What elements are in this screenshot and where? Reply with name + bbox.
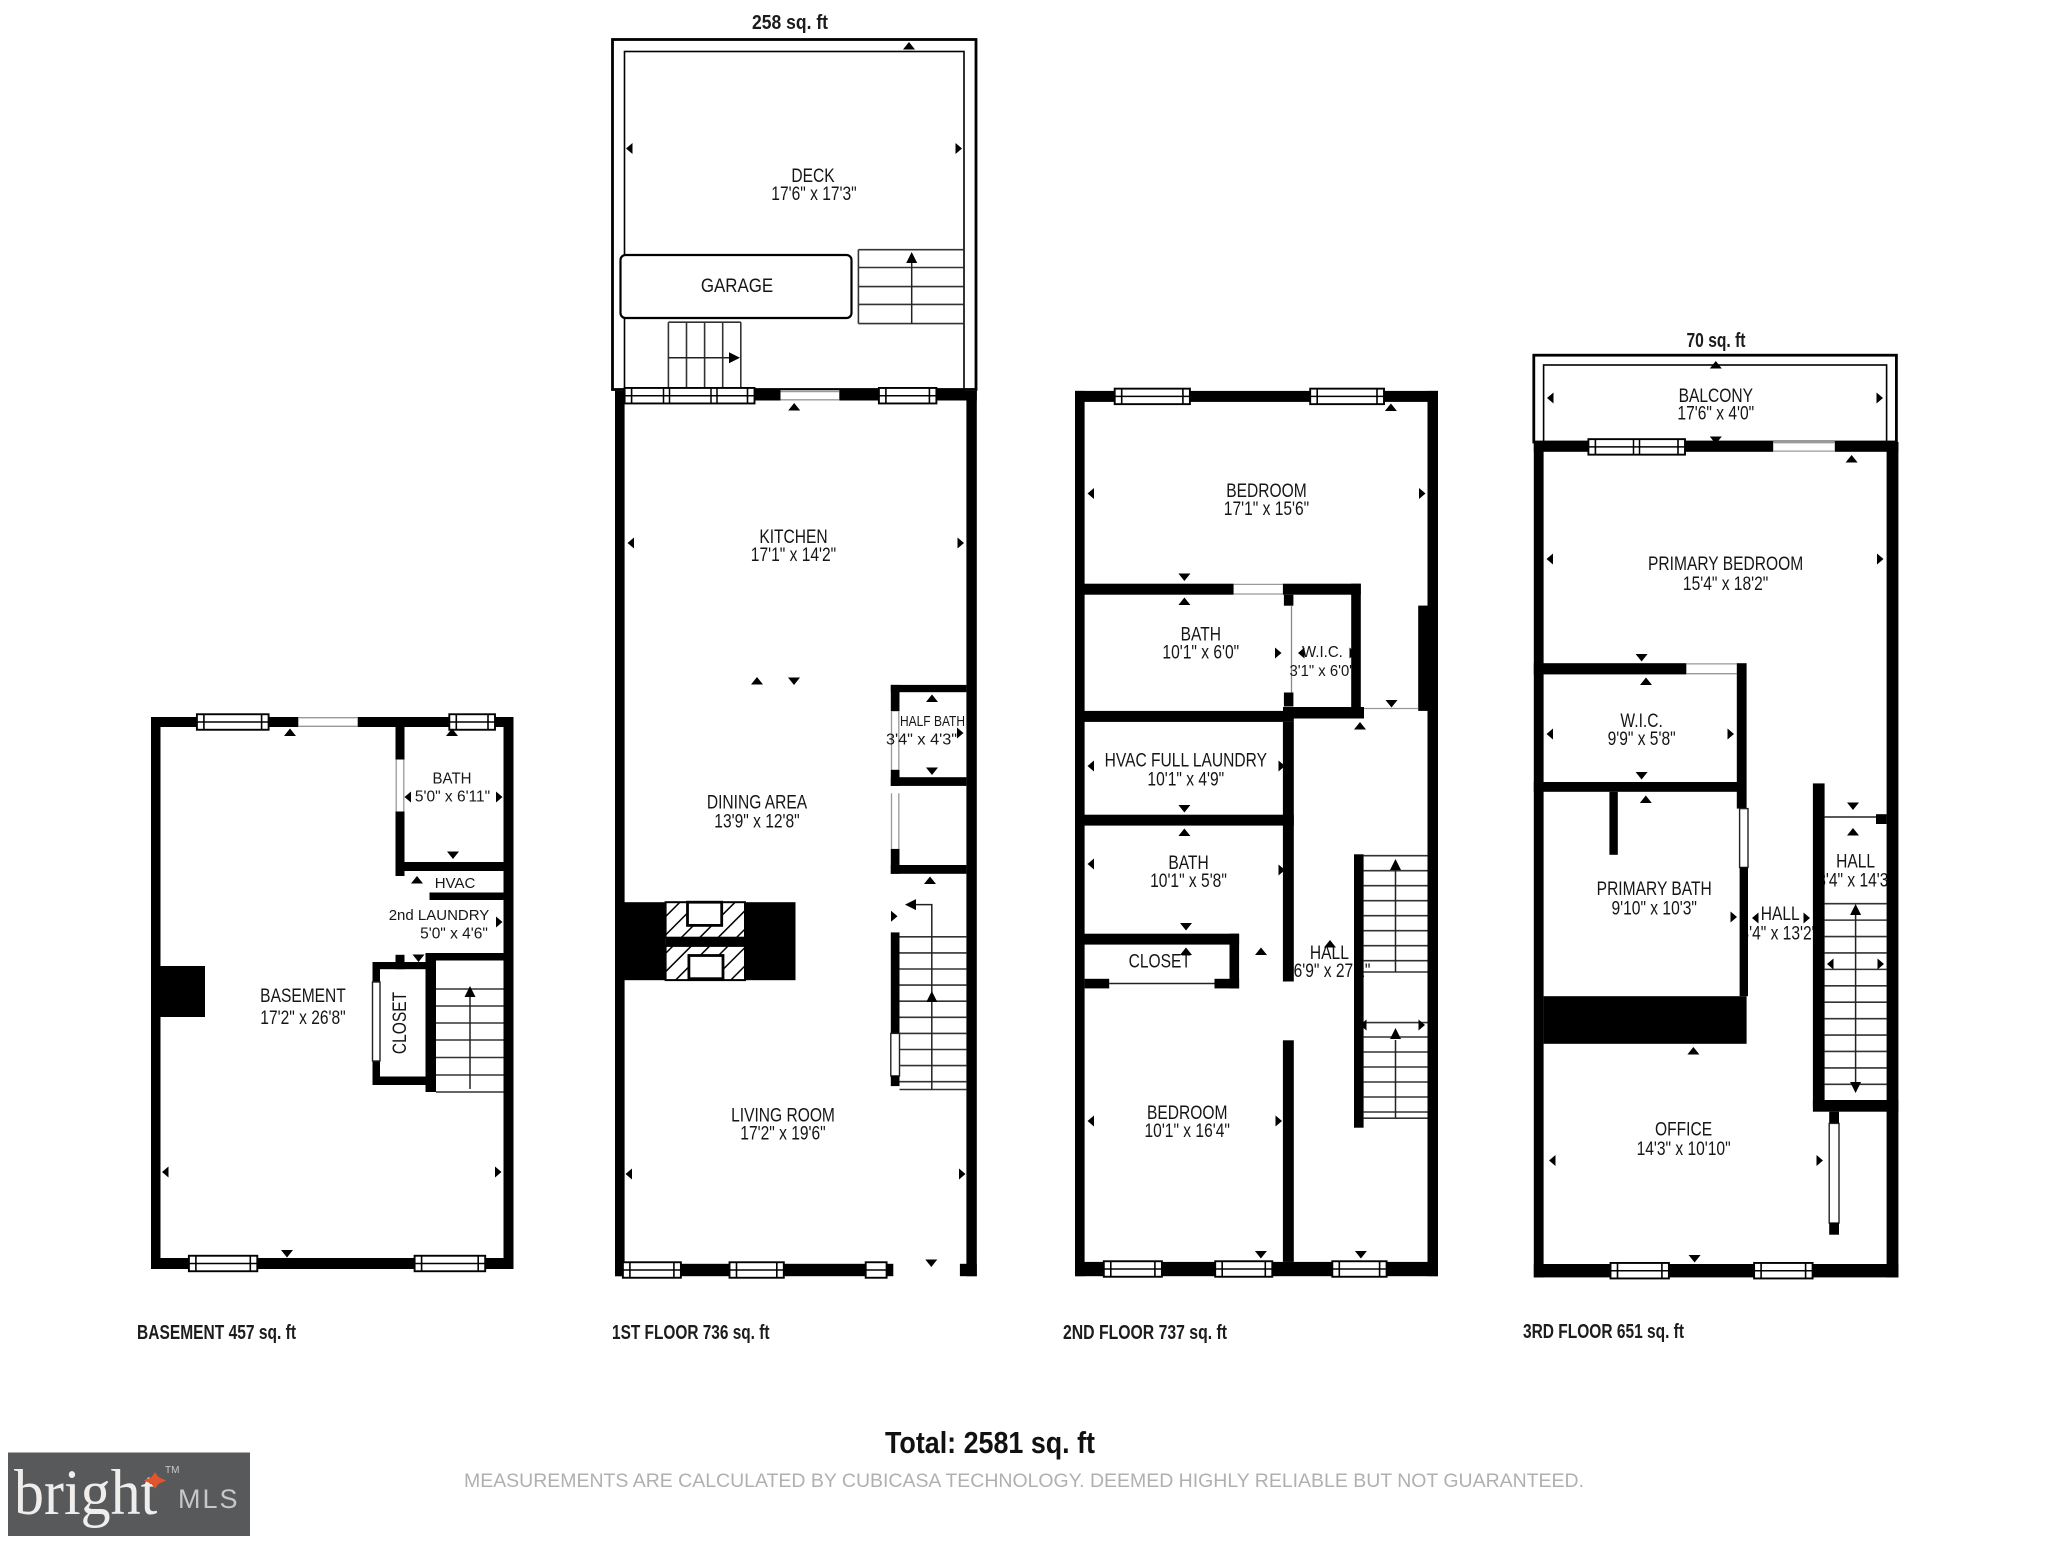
svg-text:TM: TM — [165, 1465, 179, 1476]
svg-text:17'1" x 14'2": 17'1" x 14'2" — [751, 544, 836, 566]
svg-text:bright: bright — [14, 1456, 157, 1529]
svg-text:17'6" x 17'3": 17'6" x 17'3" — [771, 183, 856, 205]
svg-text:10'1" x 16'4": 10'1" x 16'4" — [1145, 1120, 1230, 1142]
svg-text:70 sq. ft: 70 sq. ft — [1687, 330, 1746, 352]
svg-text:3'4" x 4'3": 3'4" x 4'3" — [886, 732, 957, 749]
svg-text:14'3" x 10'10": 14'3" x 10'10" — [1637, 1138, 1731, 1160]
svg-text:BASEMENT: BASEMENT — [260, 985, 346, 1007]
svg-text:3'1" x 6'0": 3'1" x 6'0" — [1289, 663, 1354, 680]
svg-text:17'2" x 19'6": 17'2" x 19'6" — [740, 1122, 825, 1144]
svg-text:2nd LAUNDRY: 2nd LAUNDRY — [389, 907, 490, 924]
svg-text:13'9" x 12'8": 13'9" x 12'8" — [714, 810, 799, 832]
svg-text:9'10" x 10'3": 9'10" x 10'3" — [1612, 897, 1697, 919]
svg-text:10'1" x 4'9": 10'1" x 4'9" — [1147, 768, 1224, 790]
svg-text:3'4" x 14'3": 3'4" x 14'3" — [1817, 869, 1894, 891]
svg-text:5'0" x 6'11": 5'0" x 6'11" — [415, 788, 490, 805]
svg-text:W.I.C.: W.I.C. — [1302, 644, 1343, 661]
svg-text:10'1" x 6'0": 10'1" x 6'0" — [1162, 641, 1239, 663]
svg-text:15'4" x 18'2": 15'4" x 18'2" — [1683, 573, 1768, 595]
svg-text:5'0" x 4'6": 5'0" x 4'6" — [420, 926, 488, 943]
svg-text:MLS: MLS — [178, 1484, 240, 1514]
svg-text:10'1" x 5'8": 10'1" x 5'8" — [1150, 870, 1227, 892]
svg-text:2ND FLOOR 737 sq. ft: 2ND FLOOR 737 sq. ft — [1063, 1322, 1227, 1344]
svg-text:CLOSET: CLOSET — [389, 992, 411, 1055]
svg-text:GARAGE: GARAGE — [701, 275, 773, 296]
svg-text:BASEMENT 457 sq. ft: BASEMENT 457 sq. ft — [137, 1322, 296, 1344]
svg-text:258 sq. ft: 258 sq. ft — [752, 12, 828, 34]
svg-text:BATH: BATH — [433, 770, 472, 787]
svg-text:PRIMARY BEDROOM: PRIMARY BEDROOM — [1648, 553, 1803, 575]
svg-text:17'6" x 4'0": 17'6" x 4'0" — [1677, 402, 1754, 424]
svg-text:17'1" x 15'6": 17'1" x 15'6" — [1224, 498, 1309, 520]
svg-text:3'4" x 13'2": 3'4" x 13'2" — [1740, 922, 1817, 944]
svg-text:3RD FLOOR 651 sq. ft: 3RD FLOOR 651 sq. ft — [1523, 1321, 1684, 1343]
svg-text:9'9" x 5'8": 9'9" x 5'8" — [1608, 728, 1676, 750]
svg-text:1ST FLOOR 736 sq. ft: 1ST FLOOR 736 sq. ft — [612, 1322, 770, 1344]
svg-text:HVAC: HVAC — [435, 875, 476, 892]
svg-text:MEASUREMENTS ARE CALCULATED BY: MEASUREMENTS ARE CALCULATED BY CUBICASA … — [464, 1470, 1584, 1492]
svg-text:HALF BATH: HALF BATH — [900, 713, 965, 730]
svg-text:Total: 2581 sq. ft: Total: 2581 sq. ft — [885, 1425, 1095, 1460]
svg-text:17'2" x 26'8": 17'2" x 26'8" — [260, 1007, 345, 1029]
